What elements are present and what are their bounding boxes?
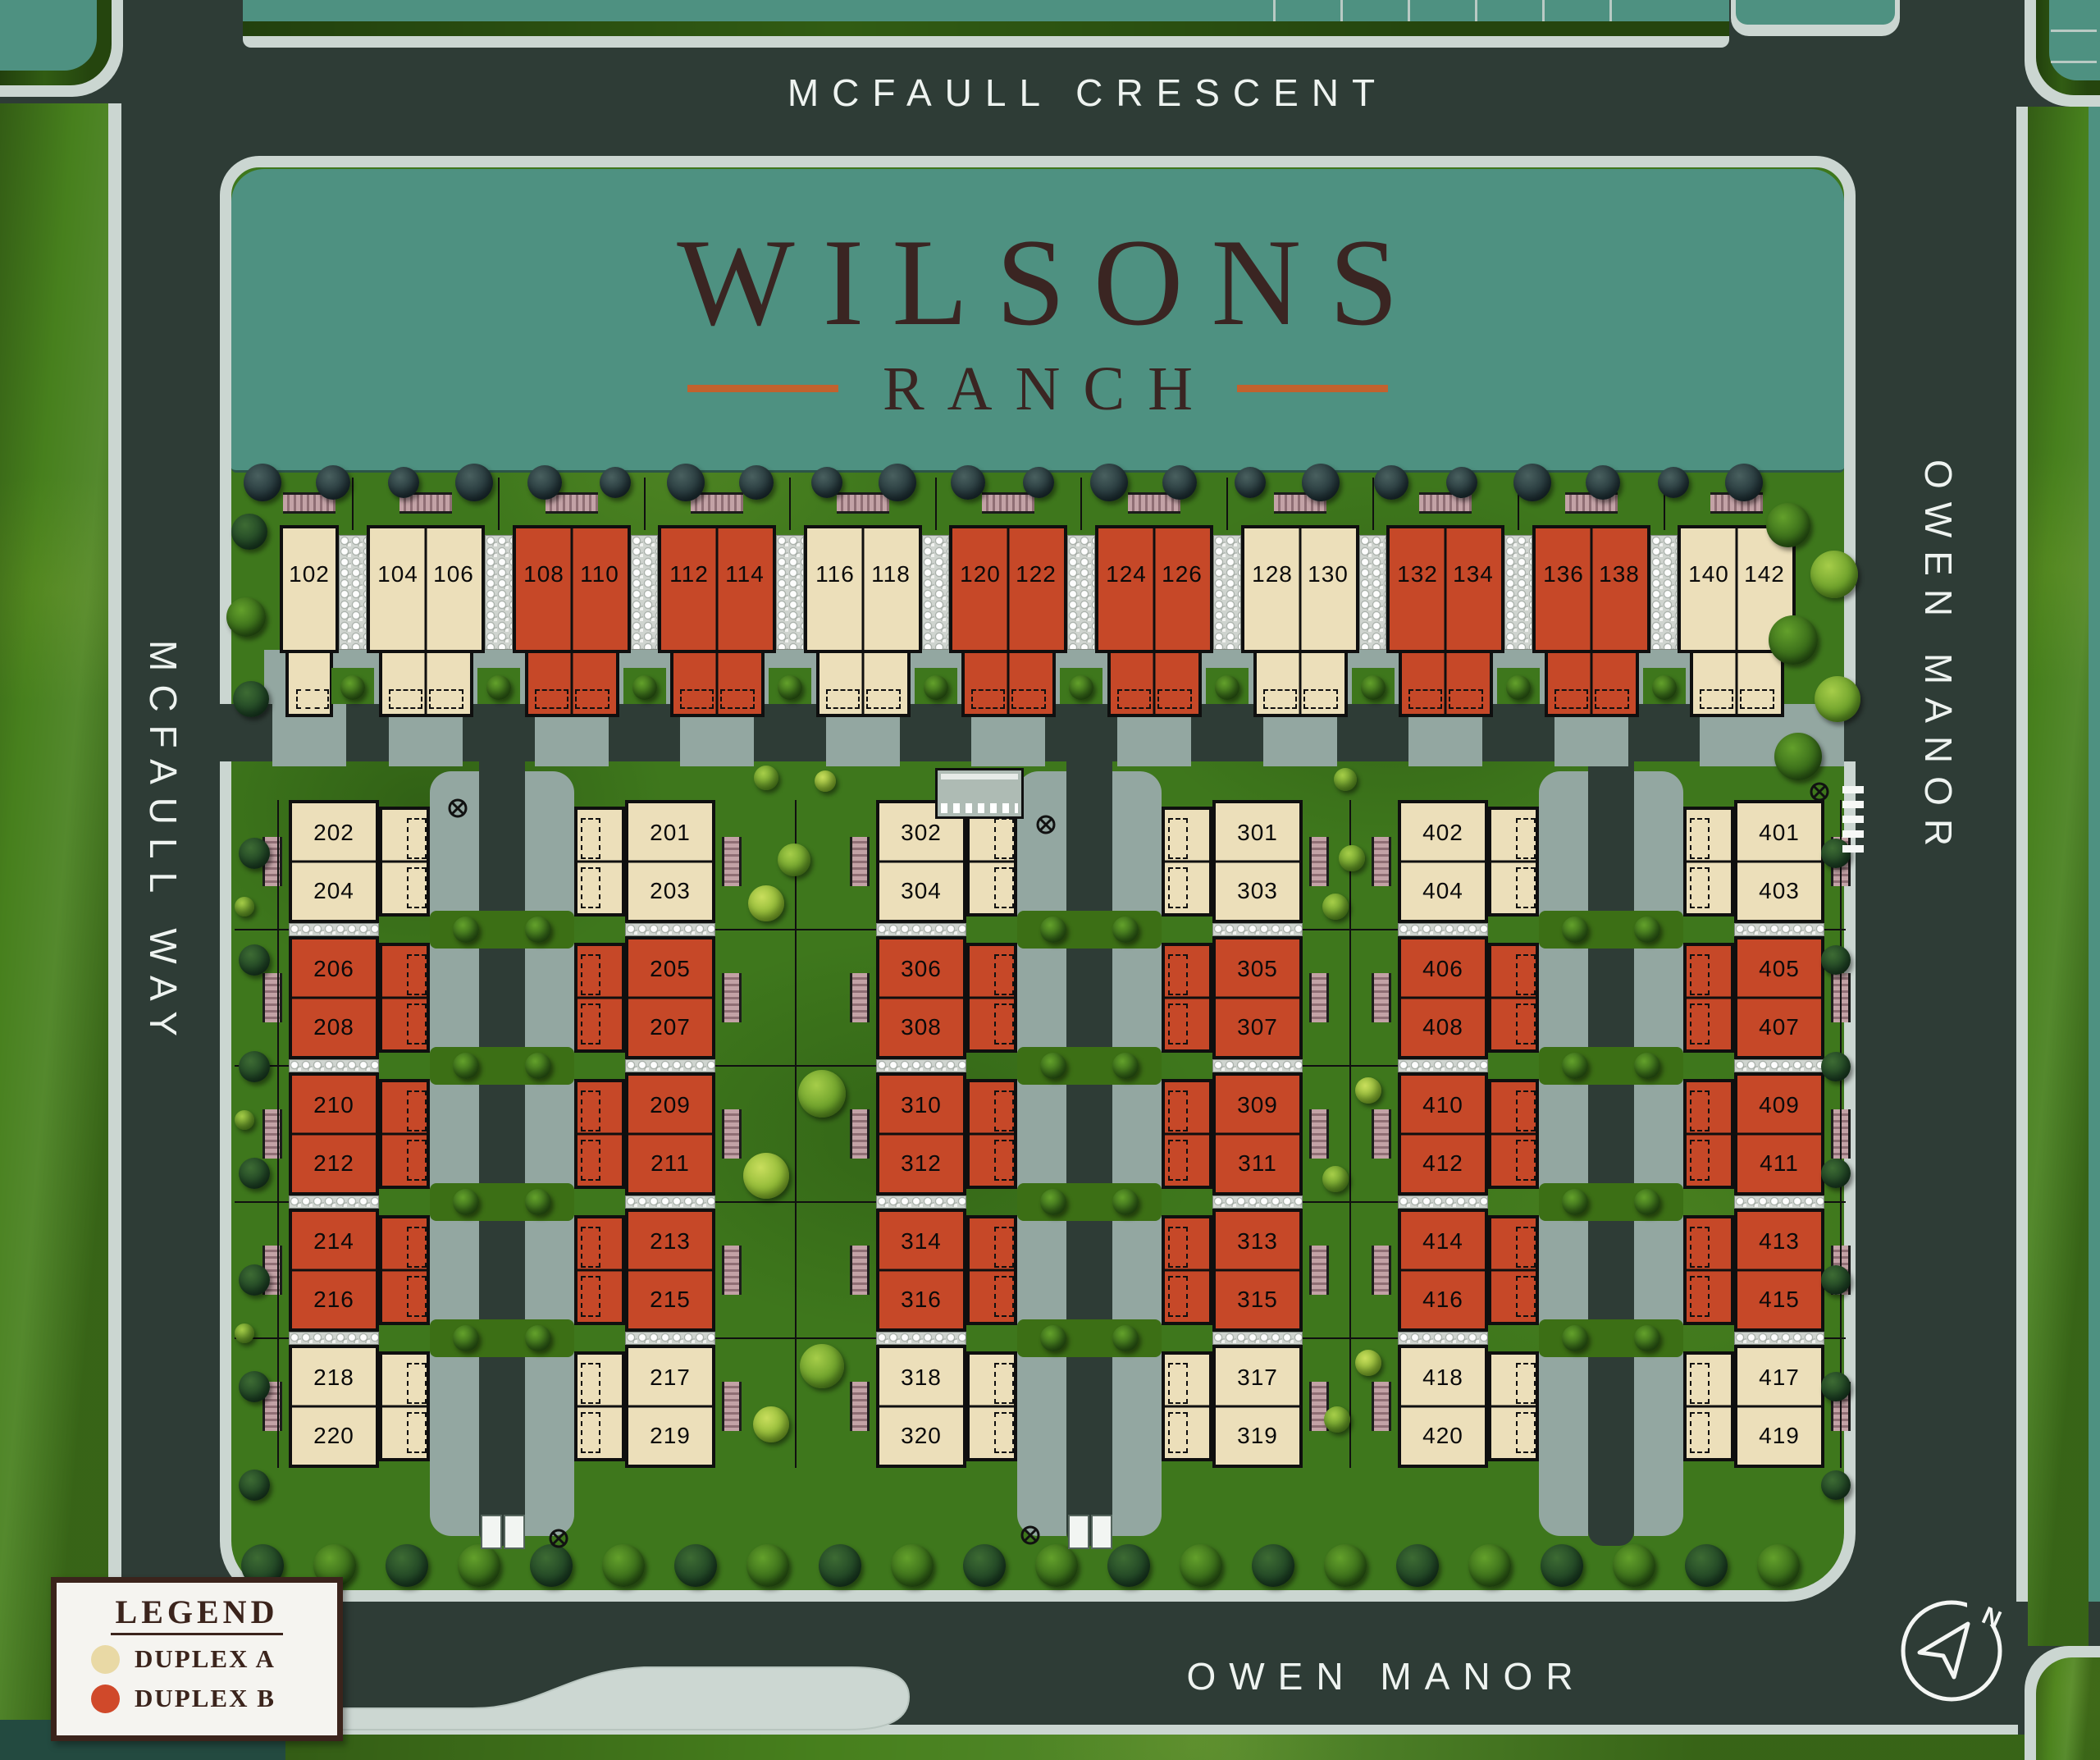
tree — [1355, 1350, 1381, 1376]
duplex-building: 124126 — [1095, 525, 1213, 717]
tree — [746, 1544, 789, 1587]
unit-divider — [1685, 1406, 1732, 1408]
tree — [1322, 894, 1349, 920]
unit-divider — [1490, 997, 1537, 999]
unit-divider — [571, 527, 573, 651]
pebble-walkway — [1398, 1195, 1488, 1209]
tree — [1374, 465, 1408, 500]
garage — [966, 1079, 1017, 1189]
bench — [1372, 1382, 1391, 1431]
lane-crossing-green — [1539, 911, 1683, 949]
tree — [1613, 1544, 1655, 1587]
garage-door — [1157, 689, 1192, 709]
tree — [1334, 768, 1357, 791]
garage — [574, 1079, 625, 1189]
pebble-walkway — [625, 923, 715, 936]
garage-door — [994, 818, 1014, 859]
unit-419: 419 — [1759, 1423, 1800, 1449]
visitor-parking — [504, 1515, 525, 1549]
garage — [1253, 650, 1348, 717]
garage — [966, 807, 1017, 917]
duplex-front: 305307 — [1212, 936, 1303, 1059]
bench — [1309, 837, 1329, 886]
unit-divider — [1007, 527, 1010, 651]
bench — [837, 492, 889, 514]
garage — [1162, 1351, 1212, 1461]
garage — [574, 1215, 625, 1325]
tree — [1322, 1166, 1349, 1192]
unit-318: 318 — [901, 1365, 942, 1391]
unit-divider — [878, 1133, 965, 1136]
bench — [262, 1109, 282, 1159]
unit-divider — [1163, 1406, 1211, 1408]
unit-124: 124 — [1106, 561, 1147, 587]
duplex-front: 213215 — [625, 1209, 715, 1332]
tree — [1821, 1470, 1851, 1500]
garage-door — [1554, 689, 1589, 709]
duplex-building: 116118 — [804, 525, 922, 717]
unit-divider — [1399, 861, 1486, 863]
garage-door — [581, 818, 600, 859]
duplex-front: 417419 — [1734, 1345, 1824, 1468]
unit-138: 138 — [1599, 561, 1640, 587]
unit-divider — [1445, 527, 1447, 651]
lot-line — [235, 1201, 289, 1203]
unit-divider — [1299, 651, 1302, 715]
bench — [1372, 837, 1391, 886]
bench — [850, 1246, 870, 1295]
garage — [1162, 1215, 1212, 1325]
unit-divider — [968, 1406, 1016, 1408]
duplex-front: 102 — [280, 525, 339, 653]
tree — [239, 1051, 270, 1082]
unit-201: 201 — [650, 820, 691, 846]
unit-divider — [1490, 861, 1537, 863]
parking-stall-line — [1542, 0, 1545, 21]
site-plan-canvas: WILSONS RANCH 10210410610811011211411611… — [0, 0, 2100, 1760]
tree — [1339, 845, 1365, 871]
unit-122: 122 — [1016, 561, 1057, 587]
unit-209: 209 — [650, 1092, 691, 1118]
unit-divider — [1736, 651, 1738, 715]
tree — [1821, 1159, 1851, 1188]
unit-divider — [1736, 861, 1823, 863]
unit-404: 404 — [1422, 878, 1463, 904]
legend-item-duplex-a: DUPLEX A — [91, 1644, 337, 1674]
visitor-parking — [481, 1515, 502, 1549]
garage-door — [1408, 689, 1443, 709]
unit-divider — [968, 1269, 1016, 1272]
unit-divider — [1214, 1269, 1301, 1272]
duplex-building: 104106 — [367, 525, 485, 717]
garage-door — [994, 1003, 1014, 1045]
pebble-walkway — [876, 923, 966, 936]
duplex-front: 132134 — [1386, 525, 1504, 653]
garage-door — [1168, 1090, 1188, 1131]
tree — [1562, 917, 1588, 943]
garage-door — [1263, 689, 1298, 709]
lane-crossing-green — [1017, 1319, 1162, 1357]
unit-divider — [576, 1406, 623, 1408]
unit-divider — [1299, 527, 1302, 651]
parking-stall-line — [1340, 0, 1343, 21]
duplex-front: 309311 — [1212, 1072, 1303, 1195]
unit-134: 134 — [1453, 561, 1494, 587]
lot-line — [235, 929, 289, 930]
unit-divider — [381, 1406, 428, 1408]
unit-divider — [1736, 997, 1823, 999]
legend-item-label: DUPLEX B — [135, 1684, 276, 1713]
tree — [525, 1189, 551, 1215]
unit-divider — [1163, 1133, 1211, 1136]
lot-line — [277, 800, 279, 1468]
duplex-front: 317319 — [1212, 1345, 1303, 1468]
tree — [600, 467, 631, 498]
driveway-apron — [1112, 771, 1162, 1536]
pebble-walkway — [876, 1059, 966, 1072]
parking-stall-line — [1609, 0, 1612, 21]
tree — [239, 838, 270, 869]
unit-divider — [1214, 1406, 1301, 1408]
unit-210: 210 — [313, 1092, 354, 1118]
unit-208: 208 — [313, 1014, 354, 1040]
unit-314: 314 — [901, 1228, 942, 1255]
garage-door — [1516, 954, 1536, 995]
tree — [1541, 1544, 1583, 1587]
unit-divider — [1214, 997, 1301, 999]
unit-divider — [1736, 527, 1738, 651]
tree — [1069, 675, 1093, 700]
utility-marker-icon — [1035, 814, 1057, 835]
garage — [1545, 650, 1639, 717]
unit-104: 104 — [377, 561, 418, 587]
unit-313: 313 — [1237, 1228, 1278, 1255]
garage-door — [1168, 1276, 1188, 1317]
tree — [632, 675, 657, 700]
unit-divider — [1736, 1269, 1823, 1272]
garage — [1683, 943, 1734, 1053]
lane-crossing-green — [430, 1047, 574, 1085]
unit-414: 414 — [1422, 1228, 1463, 1255]
garage-door — [1011, 689, 1046, 709]
street-label-mcfaull-way: MCFAULL WAY — [141, 640, 185, 1049]
duplex-front: 218220 — [289, 1345, 379, 1468]
unit-divider — [1007, 651, 1010, 715]
duplex-front: 116118 — [804, 525, 922, 653]
garage-door — [407, 1140, 427, 1181]
tree — [1513, 464, 1551, 501]
garage-door — [994, 1227, 1014, 1268]
private-lane — [1066, 761, 1112, 1546]
pebble-walkway — [625, 1059, 715, 1072]
garage-door — [1516, 1363, 1536, 1404]
tree — [891, 1544, 934, 1587]
garage — [670, 650, 765, 717]
lane-crossing-green — [1017, 911, 1162, 949]
pebble-walkway — [1734, 923, 1824, 936]
lot-line — [935, 478, 937, 530]
duplex-building: 132134 — [1386, 525, 1504, 717]
garage — [1162, 943, 1212, 1053]
bench — [850, 837, 870, 886]
pebble-walkway — [1734, 1059, 1824, 1072]
unit-divider — [878, 997, 965, 999]
duplex-front: 406408 — [1398, 936, 1488, 1059]
unit-312: 312 — [901, 1150, 942, 1177]
garage-door — [1168, 1412, 1188, 1453]
bench — [262, 973, 282, 1022]
lot-line — [1349, 800, 1351, 1468]
tree — [1810, 551, 1858, 598]
tree — [453, 917, 479, 943]
garage — [1488, 1351, 1539, 1461]
unit-307: 307 — [1237, 1014, 1278, 1040]
unit-403: 403 — [1759, 878, 1800, 904]
private-lane — [1588, 761, 1634, 1546]
garage-door — [1690, 1276, 1710, 1317]
unit-divider — [381, 997, 428, 999]
unit-divider — [878, 861, 965, 863]
tree — [924, 675, 948, 700]
unit-410: 410 — [1422, 1092, 1463, 1118]
tree — [458, 1544, 500, 1587]
garage — [1690, 650, 1784, 717]
pebble-walkway — [631, 535, 658, 650]
unit-301: 301 — [1237, 820, 1278, 846]
tree — [1685, 1544, 1728, 1587]
unit-302: 302 — [901, 820, 942, 846]
pebble-walkway — [876, 1332, 966, 1345]
lot-line — [498, 478, 500, 530]
garage-door — [1740, 689, 1774, 709]
duplex-front: 314316 — [876, 1209, 966, 1332]
pebble-walkway — [289, 923, 379, 936]
tree — [667, 464, 705, 501]
lane-crossing-green — [1017, 1047, 1162, 1085]
duplex-front: 414416 — [1398, 1209, 1488, 1332]
tree — [951, 465, 985, 500]
garage — [379, 1351, 430, 1461]
garage — [379, 1079, 430, 1189]
unit-divider — [381, 861, 428, 863]
garage-door — [1690, 1363, 1710, 1404]
tree — [1355, 1077, 1381, 1104]
bench — [722, 1246, 742, 1295]
duplex-building: 102 — [280, 525, 339, 717]
garage — [1162, 807, 1212, 917]
unit-divider — [1490, 1269, 1537, 1272]
garage-door — [581, 1003, 600, 1045]
unit-140: 140 — [1688, 561, 1729, 587]
unit-320: 320 — [901, 1423, 942, 1449]
tree — [1324, 1406, 1350, 1433]
duplex-front: 206208 — [289, 936, 379, 1059]
garage-door — [1516, 1227, 1536, 1268]
lane-crossing-green — [430, 911, 574, 949]
tree — [388, 467, 419, 498]
unit-divider — [862, 651, 865, 715]
duplex-front: 112114 — [658, 525, 776, 653]
tree — [1446, 467, 1477, 498]
tree — [1040, 917, 1066, 943]
unit-divider — [1214, 861, 1301, 863]
lot-line — [352, 478, 354, 530]
pebble-walkway — [1212, 1059, 1303, 1072]
unit-126: 126 — [1162, 561, 1203, 587]
duplex-front: 402404 — [1398, 800, 1488, 923]
garage — [379, 943, 430, 1053]
unit-416: 416 — [1422, 1287, 1463, 1313]
driveway-apron — [1017, 771, 1066, 1536]
tree — [226, 597, 266, 637]
tree — [340, 675, 365, 700]
tree — [1090, 464, 1128, 501]
unit-401: 401 — [1759, 820, 1800, 846]
bench — [1372, 1246, 1391, 1295]
tree — [530, 1544, 573, 1587]
pebble-walkway — [1504, 535, 1532, 650]
kiosk-roof — [941, 774, 1018, 779]
garage-door — [407, 1090, 427, 1131]
tree — [239, 1264, 270, 1296]
duplex-front: 202204 — [289, 800, 379, 923]
tree — [743, 1153, 789, 1199]
garage-door — [1690, 1227, 1710, 1268]
tree — [386, 1544, 428, 1587]
tree — [525, 917, 551, 943]
unit-213: 213 — [650, 1228, 691, 1255]
duplex-front: 201203 — [625, 800, 715, 923]
pebble-walkway — [339, 535, 367, 650]
tree — [1112, 1053, 1139, 1079]
driveway-apron — [1634, 771, 1683, 1536]
unit-402: 402 — [1422, 820, 1463, 846]
tree — [525, 1325, 551, 1351]
private-lane — [479, 761, 525, 1546]
tree — [1821, 1052, 1851, 1081]
tree — [879, 464, 916, 501]
tree — [1658, 467, 1689, 498]
tree — [1107, 1544, 1150, 1587]
unit-407: 407 — [1759, 1014, 1800, 1040]
pebble-walkway — [776, 535, 804, 650]
garage — [1488, 1215, 1539, 1325]
tree — [1821, 1265, 1851, 1295]
driveway-apron — [430, 771, 479, 1536]
unit-102: 102 — [289, 561, 330, 587]
tree — [1586, 465, 1620, 500]
lane-crossing-green — [1539, 1047, 1683, 1085]
garage-door — [994, 1276, 1014, 1317]
lot-line — [1824, 1337, 1846, 1339]
lot-line — [1824, 929, 1846, 930]
garage-door — [1168, 818, 1188, 859]
duplex-building: 120122 — [949, 525, 1067, 717]
garage-door — [407, 954, 427, 995]
pebble-walkway — [289, 1195, 379, 1209]
tree — [239, 944, 270, 976]
bench — [722, 973, 742, 1022]
unit-405: 405 — [1759, 956, 1800, 982]
parking-stall-line — [2051, 30, 2097, 32]
unit-408: 408 — [1422, 1014, 1463, 1040]
duplex-front: 104106 — [367, 525, 485, 653]
tree — [778, 843, 810, 876]
duplex-front: 301303 — [1212, 800, 1303, 923]
tree — [1035, 1544, 1078, 1587]
unit-415: 415 — [1759, 1287, 1800, 1313]
garage-door — [581, 867, 600, 908]
pebble-walkway — [1734, 1332, 1824, 1345]
tree — [1162, 465, 1197, 500]
tree — [1725, 464, 1763, 501]
tree — [239, 1371, 270, 1402]
driveway-apron — [1539, 771, 1588, 1536]
tree — [1302, 464, 1340, 501]
garage-door — [1690, 1003, 1710, 1045]
tree — [239, 1158, 270, 1189]
tree — [486, 675, 511, 700]
bench — [1309, 1246, 1329, 1295]
bench — [722, 837, 742, 886]
parking-stall-line — [2051, 61, 2097, 63]
pebble-walkway — [1398, 1059, 1488, 1072]
garage-door — [1516, 1412, 1536, 1453]
garage-door — [1516, 1276, 1536, 1317]
duplex-front: 405407 — [1734, 936, 1824, 1059]
unit-divider — [1490, 1133, 1537, 1136]
unit-divider — [968, 997, 1016, 999]
utility-marker-icon — [1809, 781, 1830, 802]
duplex-front: 136138 — [1532, 525, 1650, 653]
tree — [1112, 1189, 1139, 1215]
garage-door — [1168, 1140, 1188, 1181]
pebble-walkway — [1213, 535, 1241, 650]
garage-door — [1303, 689, 1338, 709]
unit-413: 413 — [1759, 1228, 1800, 1255]
duplex-building: 136138 — [1532, 525, 1650, 717]
garage-door — [581, 954, 600, 995]
duplex-front: 418420 — [1398, 1345, 1488, 1468]
bench — [1309, 973, 1329, 1022]
unit-120: 120 — [960, 561, 1001, 587]
pebble-walkway — [289, 1332, 379, 1345]
unit-204: 204 — [313, 878, 354, 904]
site-plan-content: 1021041061081101121141161181201221241261… — [0, 0, 2100, 1760]
garage-door — [680, 689, 714, 709]
tree — [1634, 1189, 1660, 1215]
unit-divider — [968, 861, 1016, 863]
garage — [574, 943, 625, 1053]
unit-219: 219 — [650, 1423, 691, 1449]
unit-divider — [425, 651, 427, 715]
visitor-parking — [1068, 1515, 1089, 1549]
garage-door — [407, 1003, 427, 1045]
utility-marker-icon — [447, 798, 468, 819]
unit-divider — [1490, 1406, 1537, 1408]
unit-divider — [290, 1406, 377, 1408]
unit-207: 207 — [650, 1014, 691, 1040]
garage-door — [826, 689, 861, 709]
duplex-front: 210212 — [289, 1072, 379, 1195]
garage-door — [1516, 818, 1536, 859]
unit-divider — [716, 527, 719, 651]
legend-item-duplex-b: DUPLEX B — [91, 1684, 337, 1713]
pebble-walkway — [1650, 535, 1678, 650]
garage-door — [1117, 689, 1152, 709]
garage-door — [994, 1140, 1014, 1181]
kiosk-boxes — [941, 803, 1018, 813]
